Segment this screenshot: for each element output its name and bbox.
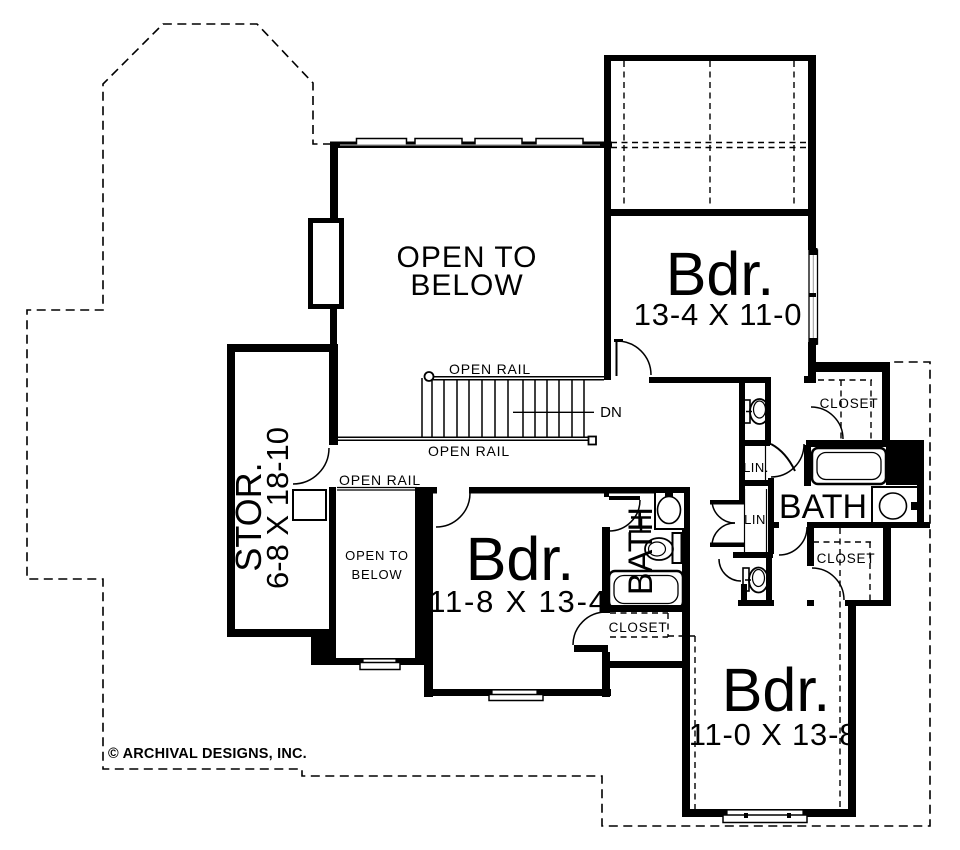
svg-text:LIN.: LIN. xyxy=(743,460,769,475)
svg-text:CLOSET: CLOSET xyxy=(817,551,876,566)
svg-text:DN: DN xyxy=(600,404,622,421)
svg-text:CLOSET: CLOSET xyxy=(609,620,668,635)
svg-text:Bdr.: Bdr. xyxy=(466,525,575,593)
svg-text:CLOSET: CLOSET xyxy=(820,396,879,411)
svg-text:© ARCHIVAL DESIGNS, INC.: © ARCHIVAL DESIGNS, INC. xyxy=(108,746,307,762)
svg-text:BATH: BATH xyxy=(622,507,660,595)
svg-text:Bdr.: Bdr. xyxy=(722,656,831,724)
svg-text:11-8 X 13-4: 11-8 X 13-4 xyxy=(428,584,608,619)
svg-text:13-4 X 11-0: 13-4 X 11-0 xyxy=(634,297,803,332)
svg-text:OPEN RAIL: OPEN RAIL xyxy=(449,361,531,377)
svg-text:BATH: BATH xyxy=(779,488,867,526)
svg-text:OPEN RAIL: OPEN RAIL xyxy=(339,472,421,488)
svg-text:OPEN RAIL: OPEN RAIL xyxy=(428,443,510,459)
svg-text:BELOW: BELOW xyxy=(410,269,523,302)
svg-text:LIN: LIN xyxy=(744,512,766,527)
svg-text:BELOW: BELOW xyxy=(352,567,403,582)
svg-text:11-0 X 13-8: 11-0 X 13-8 xyxy=(689,717,858,752)
svg-text:OPEN TO: OPEN TO xyxy=(345,548,409,563)
svg-text:6-8 X 18-10: 6-8 X 18-10 xyxy=(260,427,295,589)
